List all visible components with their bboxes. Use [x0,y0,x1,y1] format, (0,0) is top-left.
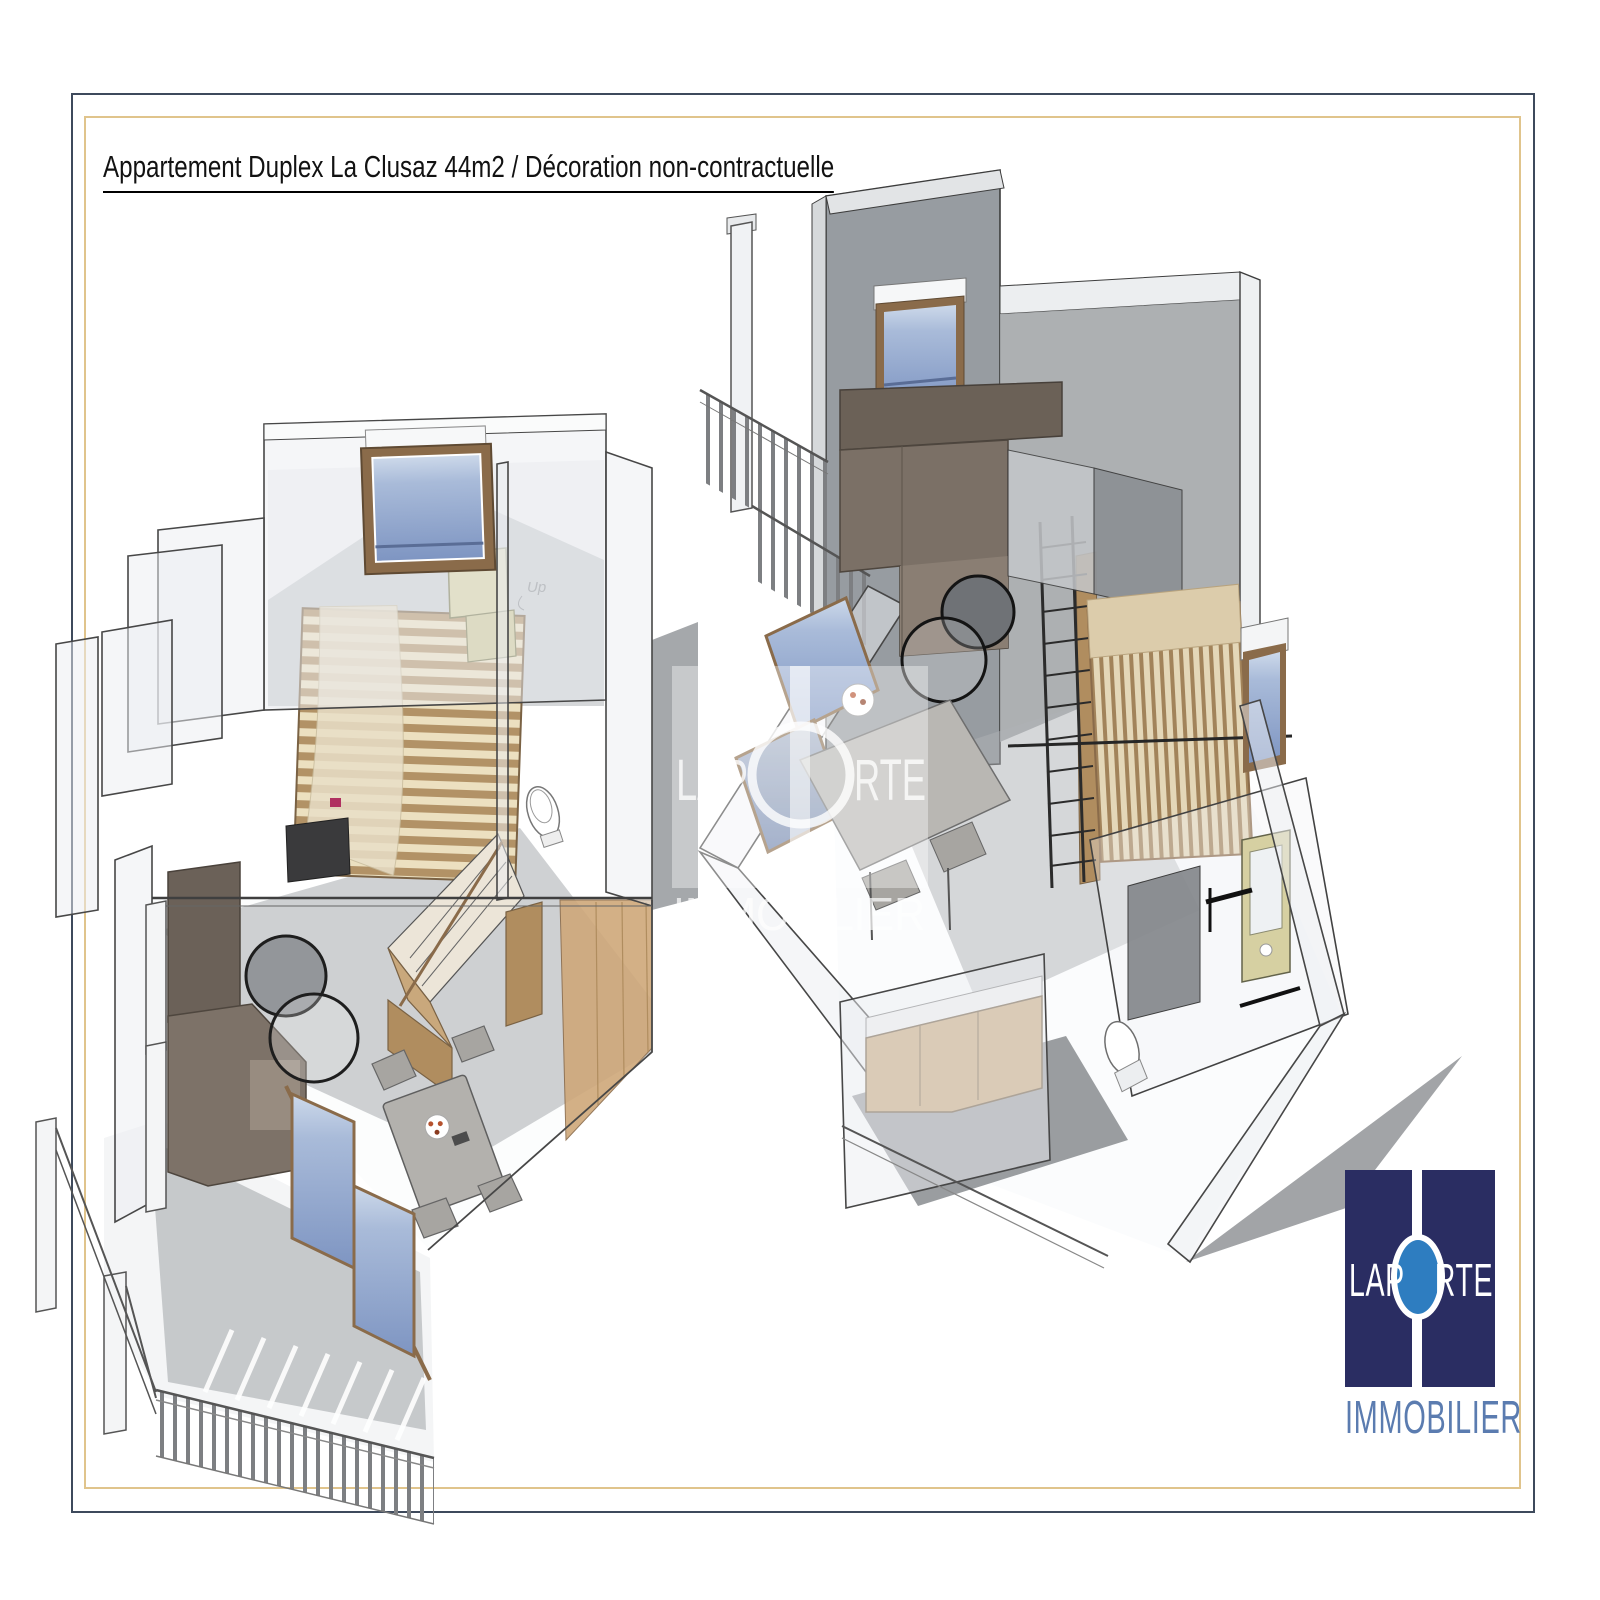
left-floor-plan: Up [36,414,698,1524]
right-wall [606,452,652,906]
watermark-logo: LAP RTE IMMOBILIER [672,666,928,940]
watermark-lap: LAP [676,748,748,813]
coffee-table-2 [270,994,358,1082]
shower-panel [1128,866,1200,1020]
left-wall-fin [56,637,98,917]
kitchen-counter [506,902,542,1026]
wardrobe [168,862,240,1022]
laporte-immobilier-logo: LAP RTE IMMOBILIER [1345,1170,1495,1432]
watermark-immobilier: IMMOBILIER [673,888,925,940]
decor-item [330,798,341,807]
logo-text-rte: RTE [1435,1257,1493,1303]
left-wall-panel-3 [102,620,172,796]
logo-text-lap: LAP [1349,1257,1405,1303]
bathroom-divider-wall [497,462,508,900]
tv-console [286,818,350,882]
closet-panel-light [1008,450,1094,594]
kitchen-wood-floor [560,900,652,1140]
skylight-window [360,426,495,574]
watermark-rte: RTE [854,748,926,813]
logo-text-immobilier: IMMOBILIER [1345,1394,1522,1440]
